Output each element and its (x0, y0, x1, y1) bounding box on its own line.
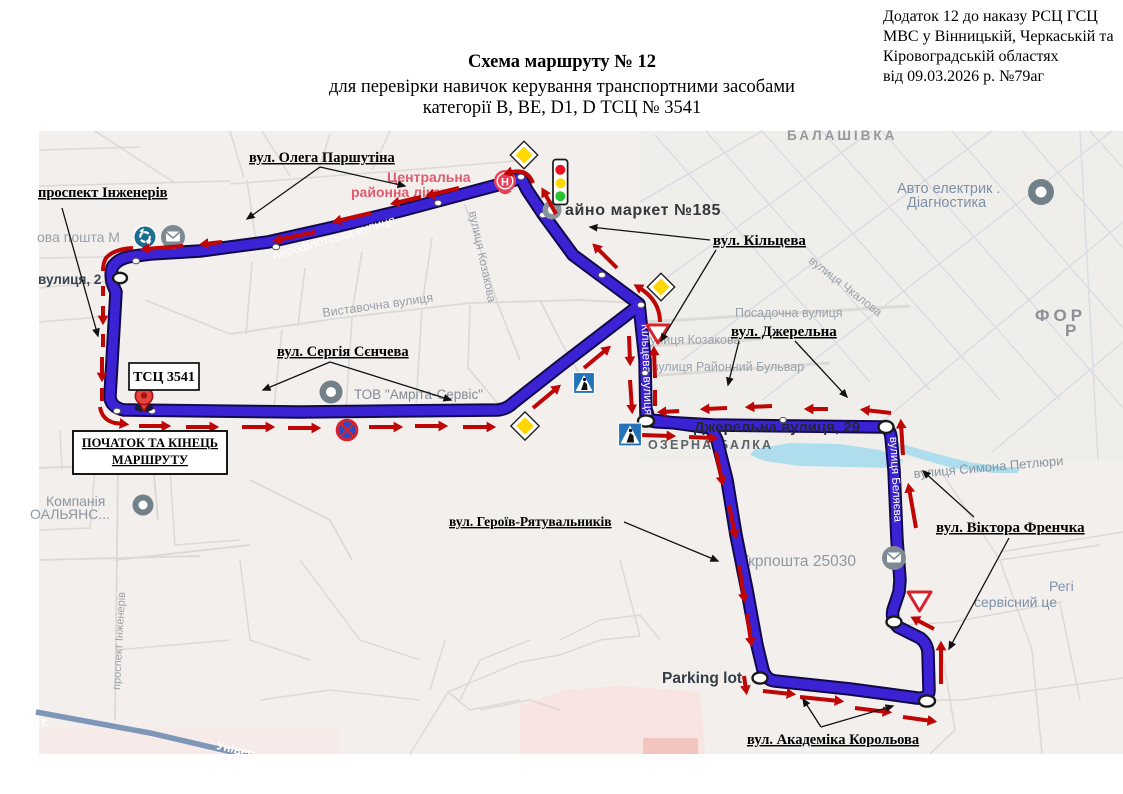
svg-text:вулиця, 2: вулиця, 2 (38, 272, 101, 287)
svg-text:ова пошта М: ова пошта М (37, 229, 120, 245)
svg-text:Додаток 12 до наказу РСЦ ГСЦ: Додаток 12 до наказу РСЦ ГСЦ (883, 8, 1098, 25)
svg-text:ТСЦ 3541: ТСЦ 3541 (133, 370, 195, 385)
svg-text:проспект Інженерів: проспект Інженерів (38, 185, 168, 201)
svg-text:вул. Кільцева: вул. Кільцева (713, 233, 806, 249)
svg-text:вул. Сергія Сєнчева: вул. Сергія Сєнчева (277, 344, 409, 360)
svg-text:Центральна: Центральна (387, 169, 471, 185)
svg-text:Схема маршруту № 12: Схема маршруту № 12 (468, 52, 656, 72)
svg-text:сервісний це: сервісний це (974, 594, 1057, 610)
svg-text:ФОР: ФОР (1035, 306, 1086, 325)
svg-text:вул. Віктора Френчка: вул. Віктора Френчка (936, 520, 1085, 536)
svg-text:вул. Героїв-Рятувальників: вул. Героїв-Рятувальників (449, 514, 612, 529)
svg-text:Р: Р (1065, 321, 1076, 340)
svg-text:Посадочна вулиця: Посадочна вулиця (735, 306, 843, 320)
svg-text:ПОЧАТОК ТА КІНЕЦЬ: ПОЧАТОК ТА КІНЕЦЬ (82, 436, 218, 450)
svg-text:Джерельна вулиця, 29: Джерельна вулиця, 29 (694, 419, 860, 436)
svg-text:МАРШРУТУ: МАРШРУТУ (112, 453, 188, 467)
svg-text:МВС у Вінницькій, Черкаській т: МВС у Вінницькій, Черкаській та (883, 28, 1114, 45)
svg-text:Кіровоградській областях: Кіровоградській областях (883, 48, 1059, 65)
svg-text:H: H (501, 177, 509, 189)
svg-text:Parking lot: Parking lot (662, 670, 742, 687)
svg-text:Укрпошта 25030: Укрпошта 25030 (739, 553, 856, 570)
svg-text:Діагностика: Діагностика (907, 195, 987, 211)
svg-text:Регі: Регі (1049, 578, 1074, 594)
svg-text:вул. Академіка Корольова: вул. Академіка Корольова (747, 732, 920, 748)
svg-text:для перевірки навичок керуванн: для перевірки навичок керування транспор… (329, 77, 795, 97)
svg-text:вул. Олега Паршутіна: вул. Олега Паршутіна (249, 150, 396, 166)
svg-text:категорії В, ВЕ, D1, D ТСЦ №: категорії В, ВЕ, D1, D ТСЦ № 3541 (423, 98, 702, 118)
svg-text:від 09.03.2026 р. №79аг: від 09.03.2026 р. №79аг (883, 68, 1045, 85)
svg-text:БАЛАШІВКА: БАЛАШІВКА (787, 128, 897, 143)
svg-text:кт.: кт. (33, 713, 49, 729)
svg-text:вул. Джерельна: вул. Джерельна (731, 324, 837, 340)
svg-text:ОАЛЬЯНС...: ОАЛЬЯНС... (30, 506, 110, 522)
svg-text:айно маркет №185: айно маркет №185 (565, 202, 721, 219)
svg-text:вулиця Районний Бульвар: вулиця Районний Бульвар (652, 360, 804, 374)
